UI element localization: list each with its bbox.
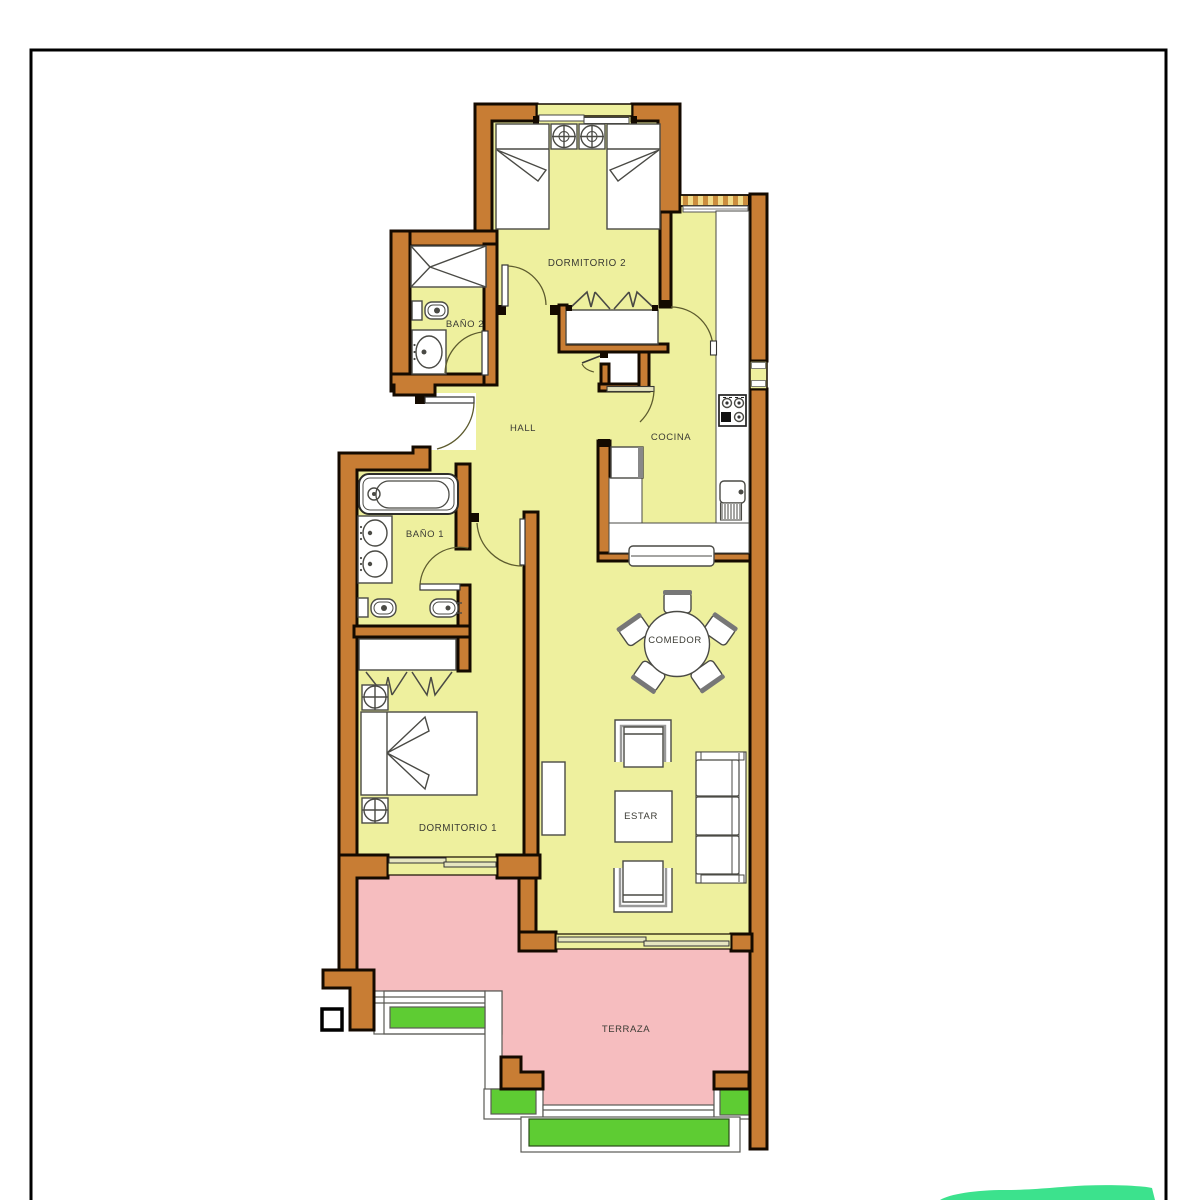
svg-text:BAÑO 1: BAÑO 1 [406, 529, 444, 540]
svg-text:HALL: HALL [510, 423, 536, 434]
svg-text:DORMITORIO 2: DORMITORIO 2 [548, 258, 626, 269]
svg-text:COMEDOR: COMEDOR [648, 635, 701, 646]
svg-text:COCINA: COCINA [651, 432, 691, 443]
svg-text:TERRAZA: TERRAZA [602, 1024, 650, 1035]
svg-text:DORMITORIO 1: DORMITORIO 1 [419, 823, 497, 834]
svg-text:BAÑO 2: BAÑO 2 [446, 319, 484, 330]
svg-text:ESTAR: ESTAR [624, 811, 658, 822]
